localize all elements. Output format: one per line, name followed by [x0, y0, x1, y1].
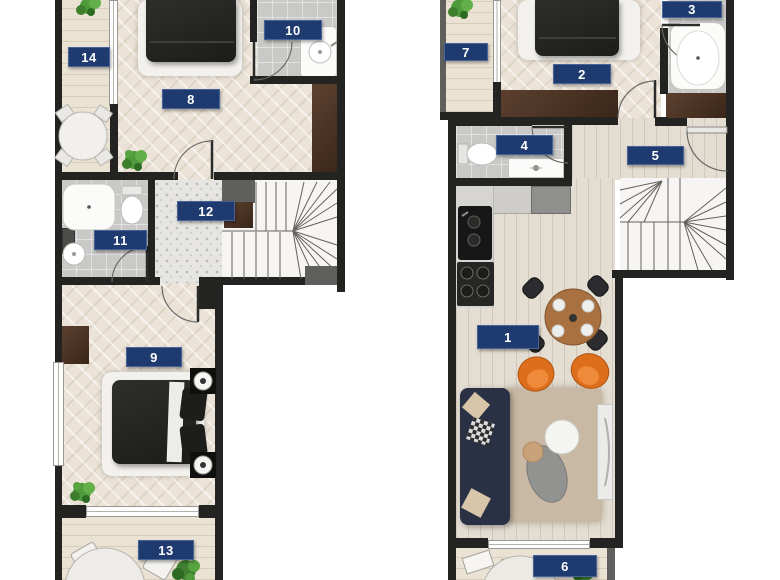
armchair-orange-right — [566, 348, 614, 394]
plant-bedroom-9 — [70, 482, 95, 503]
stairs-right — [620, 178, 726, 270]
room-label-11: 11 — [94, 230, 147, 250]
room-label-4: 4 — [496, 135, 553, 155]
plant-balcony-14 — [76, 0, 101, 16]
room-label-1: 1 — [477, 325, 539, 349]
coffee-tables — [520, 420, 579, 507]
room-label-6: 6 — [533, 555, 597, 577]
balcony-14-table — [55, 104, 113, 166]
plant-balcony-13 — [172, 560, 200, 580]
room-label-5: 5 — [627, 146, 684, 165]
plant-bedroom-8 — [122, 150, 147, 171]
bathroom-11-fixtures — [63, 184, 143, 265]
room-label-9: 9 — [126, 347, 182, 367]
room-label-8: 8 — [162, 89, 220, 109]
room-label-12: 12 — [177, 201, 235, 221]
kitchen-details — [461, 212, 489, 297]
bedroom-9-bed-details — [167, 368, 216, 478]
floor-plan-canvas: 14 8 10 12 11 9 13 7 2 3 4 5 1 6 — [0, 0, 780, 580]
plant-balcony-7 — [448, 0, 473, 19]
room-label-10: 10 — [264, 20, 322, 40]
room-label-7: 7 — [444, 43, 488, 61]
vector-details — [0, 0, 780, 580]
room-label-14: 14 — [68, 47, 110, 67]
entrance-door-leaf — [687, 127, 727, 133]
armchair-orange-left — [513, 352, 558, 396]
door-leaves-left — [147, 42, 254, 322]
bathroom-10-sink — [309, 41, 337, 63]
radiator-handle — [605, 418, 609, 486]
room-label-3: 3 — [662, 1, 722, 18]
room-label-2: 2 — [553, 64, 611, 84]
bathroom-3-tub-bowl — [677, 31, 719, 85]
room-label-13: 13 — [138, 540, 194, 560]
door-arcs-left — [112, 42, 292, 322]
stairs-left — [222, 182, 337, 279]
